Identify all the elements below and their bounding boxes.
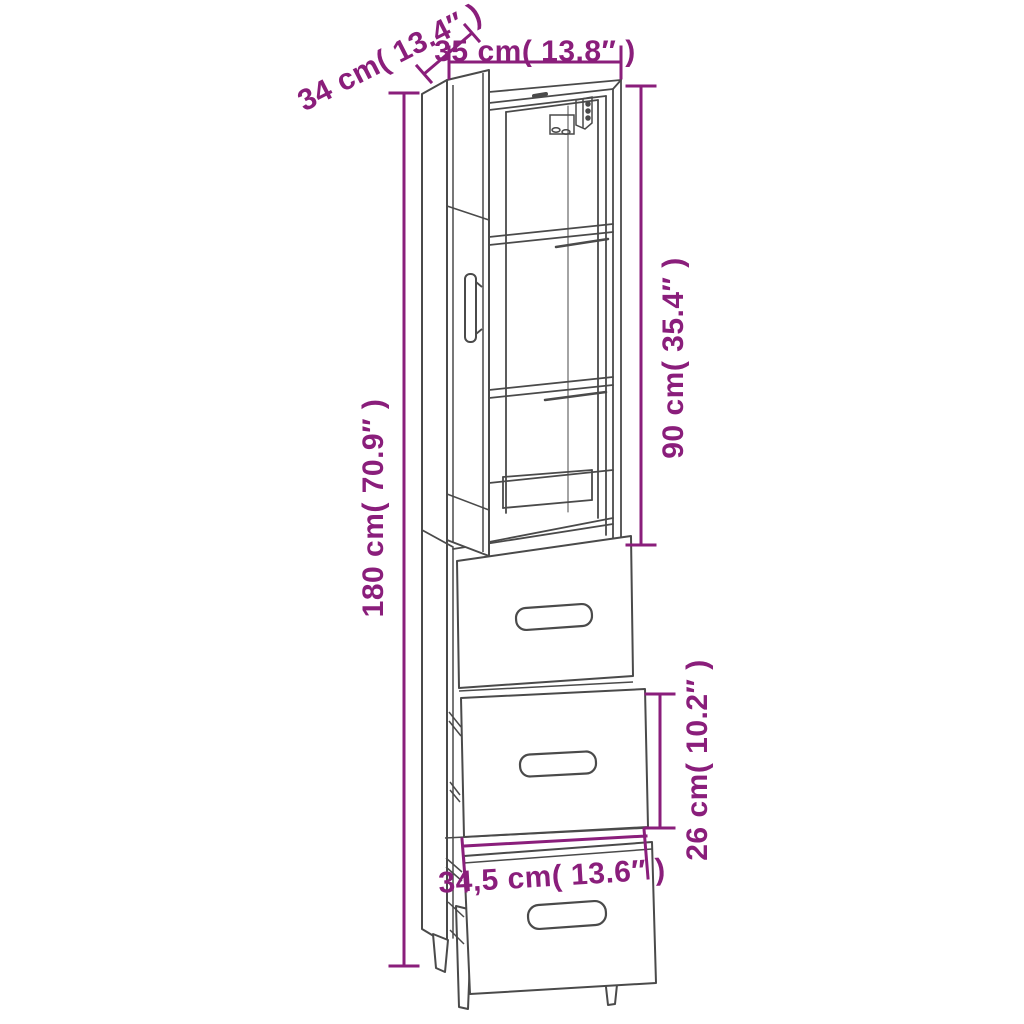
dimension-label-total-height: 180 cm( 70.9″ )	[358, 273, 390, 743]
cabinet-upper-interior	[489, 80, 621, 543]
shelf-upper	[489, 224, 613, 247]
dimension-label-width: 35 cm( 13.8″ )	[425, 36, 645, 68]
drawer-middle	[445, 689, 648, 838]
side-panel	[422, 80, 447, 944]
dimension-line-upper-height	[627, 86, 655, 545]
drawer-top	[457, 536, 633, 691]
wall-bracket-icon	[534, 94, 592, 134]
bottom-board	[489, 470, 613, 508]
leg-left	[433, 934, 448, 972]
shelf-lower	[489, 377, 613, 400]
product-dimension-diagram: 34 cm( 13.4″ ) 35 cm( 13.8″ ) 90 cm( 35.…	[0, 0, 1024, 1024]
glass-door-open	[447, 70, 489, 556]
dimension-line-total-height	[390, 93, 418, 966]
dimension-label-upper-height: 90 cm( 35.4″ )	[658, 138, 690, 578]
dimension-line-drawer-height	[646, 694, 674, 828]
